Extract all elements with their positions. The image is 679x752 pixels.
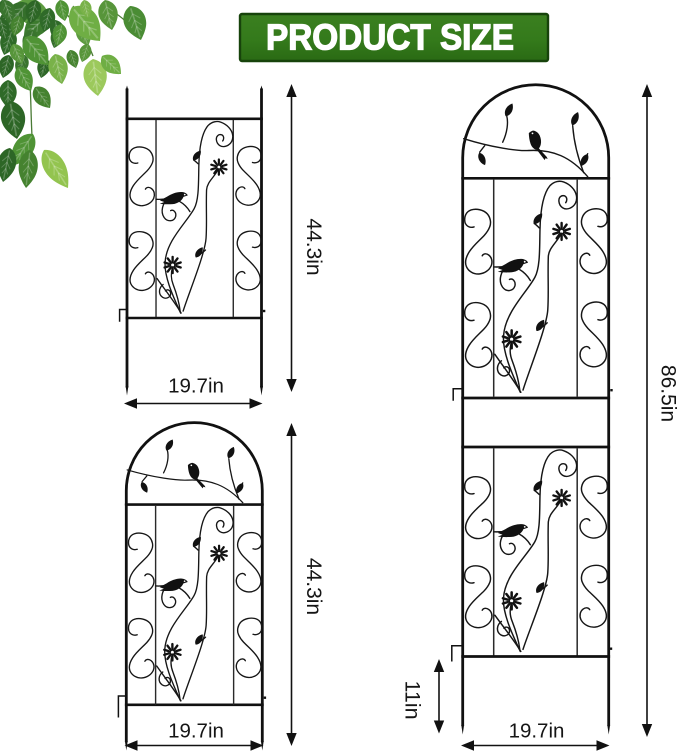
svg-text:19.7in: 19.7in — [168, 720, 224, 743]
svg-text:11in: 11in — [401, 680, 425, 719]
svg-text:86.5in: 86.5in — [657, 365, 679, 422]
svg-text:19.7in: 19.7in — [168, 375, 224, 398]
svg-text:19.7in: 19.7in — [509, 720, 565, 743]
svg-text:44.3in: 44.3in — [302, 218, 325, 275]
svg-text:PRODUCT SIZE: PRODUCT SIZE — [266, 17, 514, 58]
svg-text:44.3in: 44.3in — [302, 558, 325, 615]
